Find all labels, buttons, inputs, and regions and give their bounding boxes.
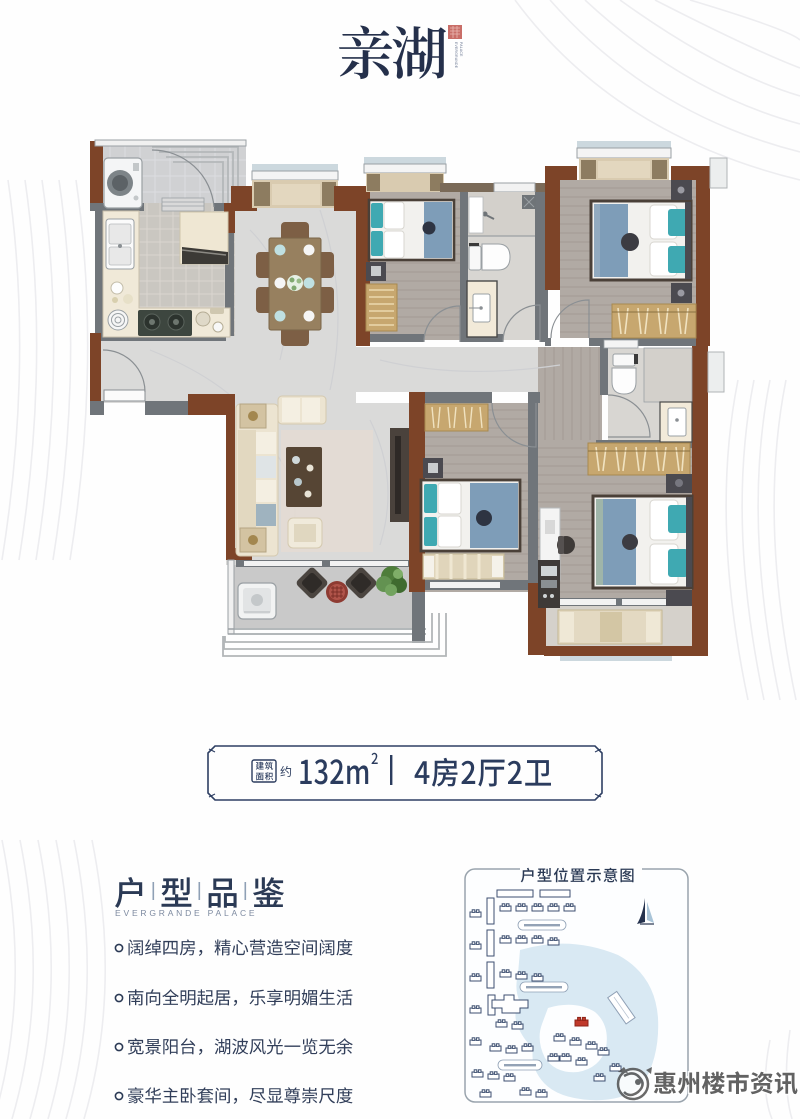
svg-text:EVERGRANDE PALACE: EVERGRANDE PALACE (115, 908, 257, 918)
svg-text:EVERGRANDE: EVERGRANDE (454, 42, 458, 69)
svg-text:PALACE: PALACE (459, 42, 463, 57)
